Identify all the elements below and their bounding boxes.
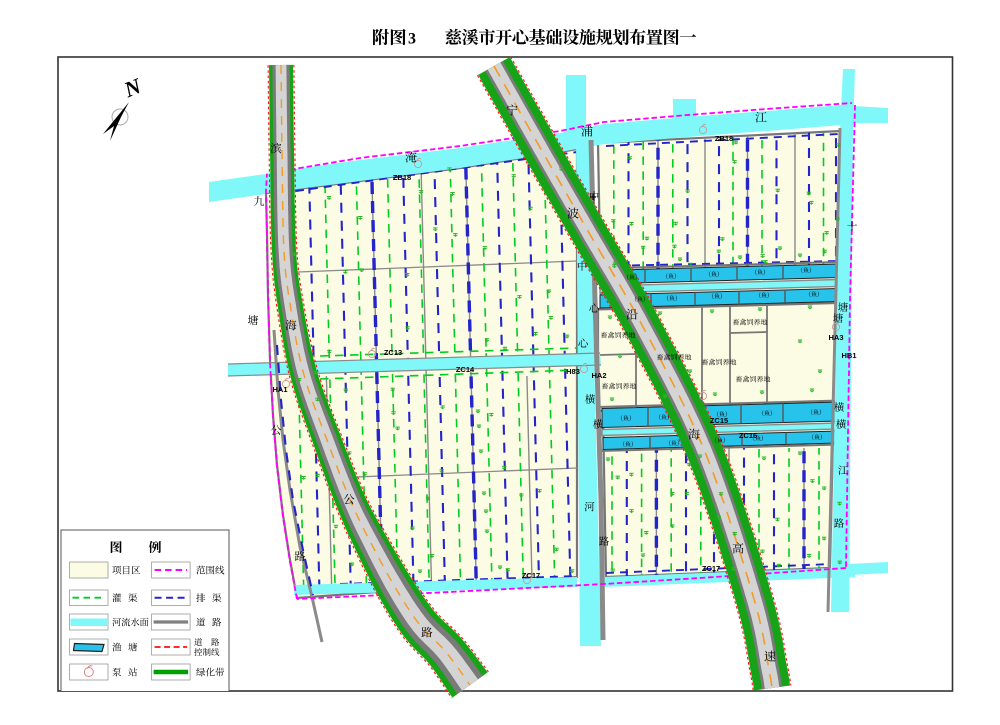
svg-text:HA1: HA1: [272, 385, 287, 394]
svg-text:3: 3: [408, 31, 416, 48]
svg-text:ZB18: ZB18: [715, 134, 733, 143]
svg-text:H83: H83: [566, 367, 580, 376]
svg-text:ZB18: ZB18: [393, 173, 411, 182]
svg-text:ZC15: ZC15: [710, 416, 728, 425]
svg-text:ZC13: ZC13: [384, 348, 402, 357]
svg-text:ZC17: ZC17: [702, 564, 720, 573]
svg-text:ZC14: ZC14: [456, 365, 475, 374]
svg-text:HA2: HA2: [591, 371, 606, 380]
svg-text:HB1: HB1: [841, 351, 856, 360]
svg-text:HA3: HA3: [828, 333, 843, 342]
svg-text:ZC17: ZC17: [522, 571, 540, 580]
